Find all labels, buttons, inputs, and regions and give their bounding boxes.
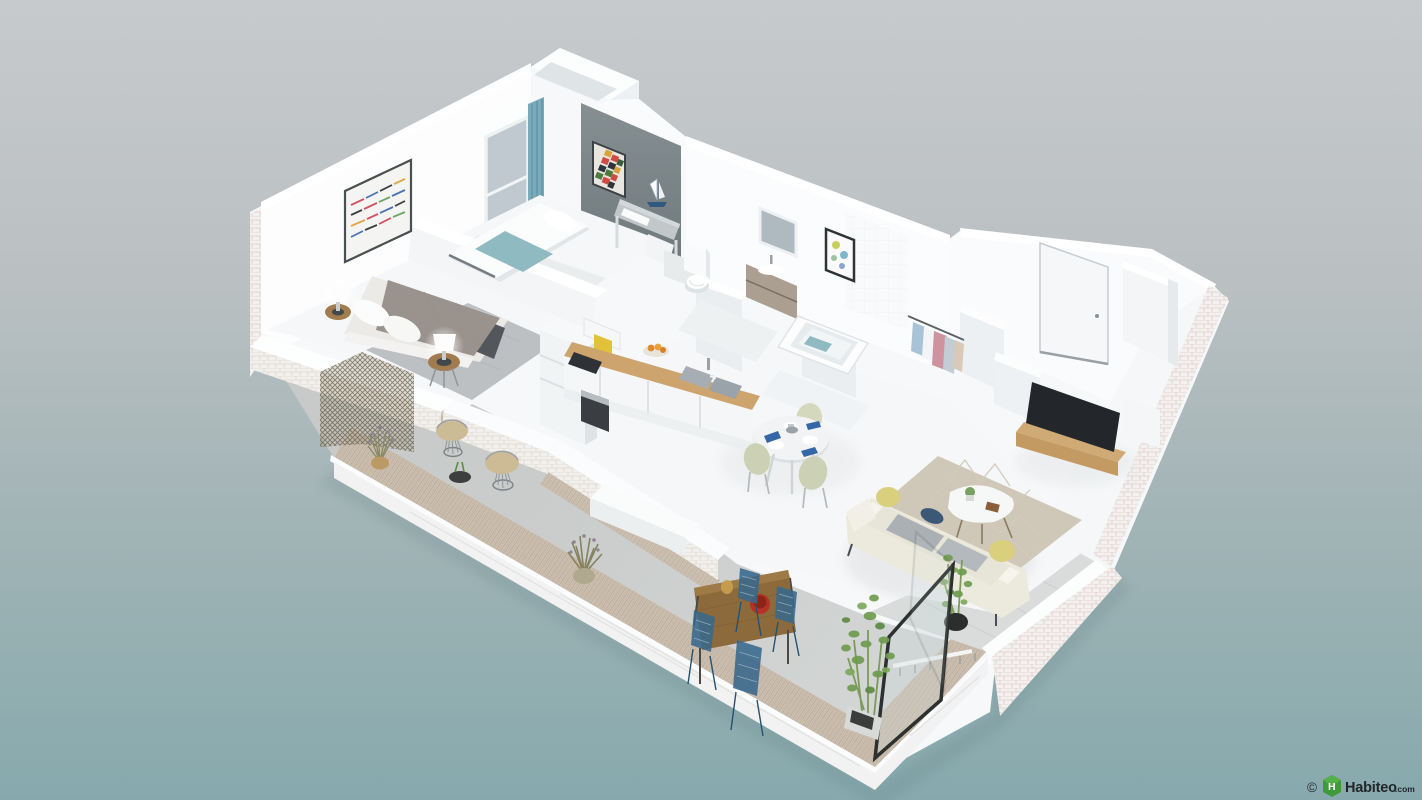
- svg-text:©: ©: [1307, 780, 1317, 795]
- svg-text:Habiteo: Habiteo: [1345, 780, 1397, 796]
- svg-text:H: H: [1328, 781, 1336, 793]
- svg-text:.com: .com: [1395, 784, 1415, 794]
